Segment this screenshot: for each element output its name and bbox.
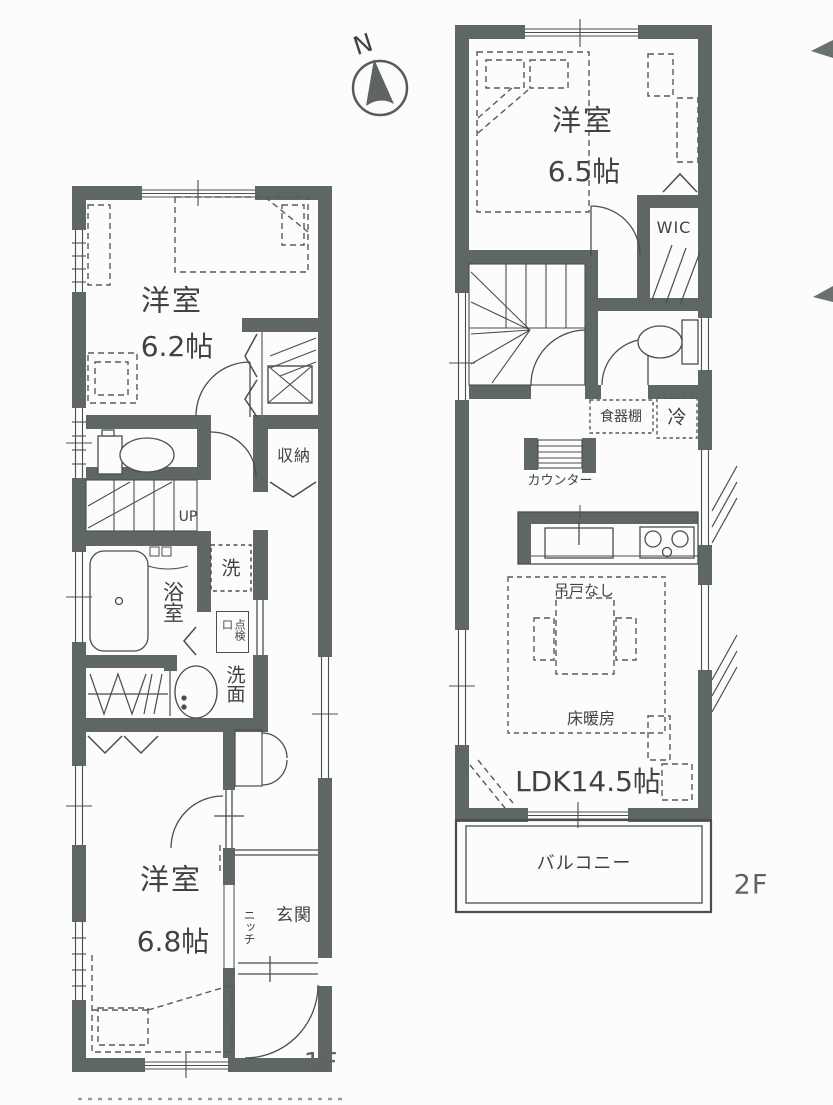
room-1f-washroom-label: 洗面 <box>225 665 244 703</box>
floorplan-page: N 洋室 6.2帖 収納 UP 浴室 洗 点検口 洗面 洋室 6.8帖 ニッチ … <box>0 0 833 1105</box>
niche-label: ニッチ <box>243 909 255 945</box>
inspection-hatch-box: 点検口 <box>216 611 249 653</box>
compass-icon <box>353 59 407 115</box>
right-edge-hatch-marks <box>712 466 737 712</box>
1f-closet-hatch <box>262 332 316 415</box>
room-1f-bath-label: 浴室 <box>162 581 183 623</box>
niche-opening <box>223 885 235 968</box>
room-1f-bedroom-bottom-size: 6.8帖 <box>137 928 210 956</box>
counter-icon <box>538 440 582 468</box>
wic-label: WIC <box>657 220 692 236</box>
balcony-label: バルコニー <box>537 855 632 873</box>
2f-stairs <box>469 264 585 385</box>
room-1f-bedroom-bottom-name: 洋室 <box>140 866 202 895</box>
room-2f-ldk-label: LDK14.5帖 <box>515 768 661 796</box>
floor-heating-label: 床暖房 <box>567 711 615 727</box>
floor-2f-label: 2F <box>734 872 769 899</box>
room-1f-storage-label: 収納 <box>277 448 311 464</box>
stairs-up-label: UP <box>179 510 198 524</box>
room-1f-bedroom-top-name: 洋室 <box>141 287 203 316</box>
wic-hatch <box>652 245 700 305</box>
inspection-hatch-label: 点検口 <box>220 619 245 646</box>
toilet-1f-icon <box>98 430 174 474</box>
washer-label: 洗 <box>221 560 240 579</box>
counter-label: カウンター <box>527 475 592 488</box>
room-1f-bedroom-top-size: 6.2帖 <box>141 333 214 361</box>
refrigerator-label: 冷 <box>667 409 686 428</box>
cupboard-label: 食器棚 <box>600 410 642 424</box>
room-2f-bedroom-name: 洋室 <box>552 107 614 136</box>
edge-marker-icons <box>811 40 833 302</box>
washbasin-icon <box>175 666 217 718</box>
floorplan-drawing <box>0 0 833 1105</box>
room-1f-entrance-label: 玄関 <box>276 908 312 925</box>
north-needle-icon <box>366 59 394 106</box>
no-upper-cabinets-label: 吊戸なし <box>554 584 614 599</box>
room-2f-bedroom-size: 6.5帖 <box>548 158 621 186</box>
floor-1f-label: 1F <box>304 1050 339 1077</box>
toilet-2f-icon <box>638 320 698 364</box>
1f-pipe-closet-hatch <box>88 671 170 716</box>
